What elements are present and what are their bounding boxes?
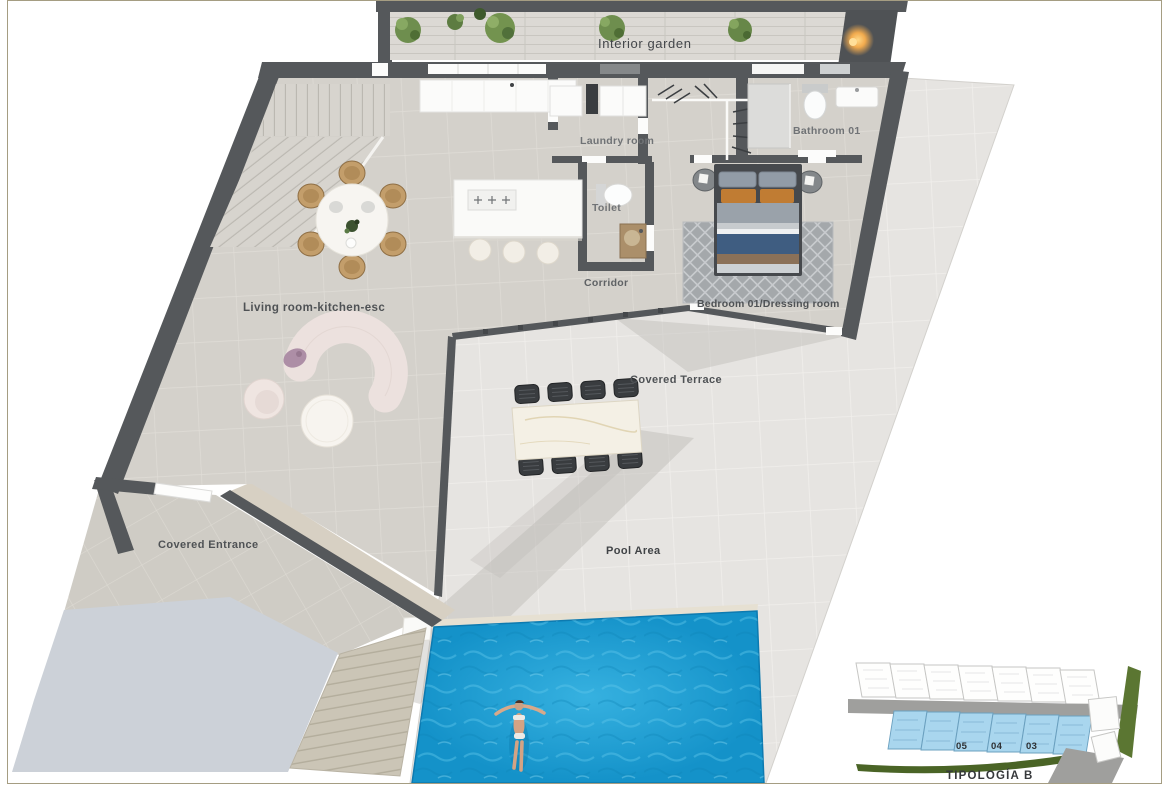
floor-plan-graphic <box>0 0 1170 785</box>
interior-garden <box>376 0 908 66</box>
label-toilet: Toilet <box>592 202 621 214</box>
coffee-table <box>301 395 353 447</box>
label-bathroom-01: Bathroom 01 <box>793 125 860 137</box>
site-plan-inset <box>848 663 1141 783</box>
label-unit-04: 04 <box>991 741 1002 752</box>
swimming-pool <box>412 611 764 783</box>
label-unit-05: 05 <box>956 741 967 752</box>
laundry-appliances <box>550 84 646 116</box>
label-covered-entrance: Covered Entrance <box>158 539 259 551</box>
label-corridor: Corridor <box>584 277 628 289</box>
label-laundry-room: Laundry room <box>580 135 654 147</box>
label-bedroom-01-dressing: Bedroom 01/Dressing room <box>697 298 840 310</box>
island-stools <box>469 239 559 264</box>
bedroom <box>683 164 833 303</box>
shower <box>748 84 790 148</box>
toilet-fixture <box>804 91 826 119</box>
label-tipologia: TIPOLOGÍA B <box>946 770 1034 782</box>
floor-plan-page: Interior garden Laundry room Bathroom 01… <box>0 0 1170 785</box>
label-unit-03: 03 <box>1026 741 1037 752</box>
garden-light <box>842 24 874 56</box>
label-covered-terrace: Covered Terrace <box>630 374 722 386</box>
bed <box>714 164 802 276</box>
label-interior-garden: Interior garden <box>598 36 692 51</box>
label-pool-area: Pool Area <box>606 545 661 557</box>
label-living-room-kitchen: Living room-kitchen-esc <box>243 302 385 314</box>
top-wall <box>258 62 906 78</box>
